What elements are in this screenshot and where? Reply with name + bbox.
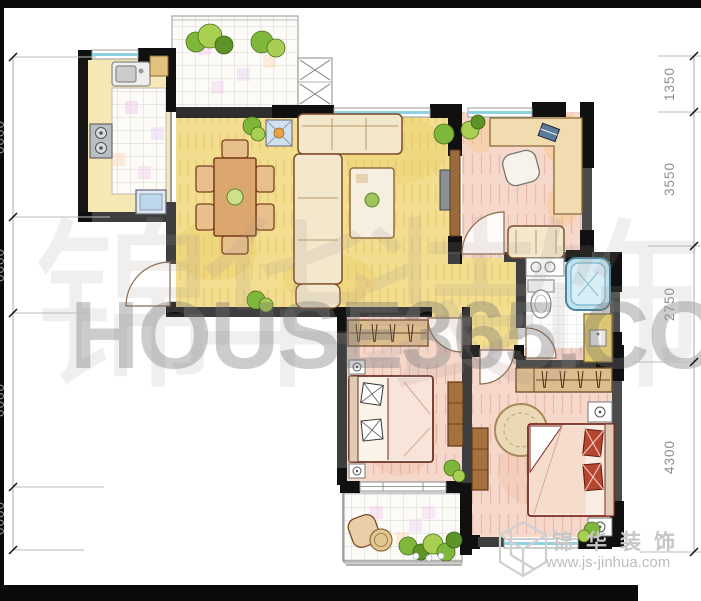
dim-label-left-clipped: 0000 xyxy=(0,501,7,535)
master-cabinet xyxy=(472,428,488,490)
dim-label-left-clipped: 0000 xyxy=(0,120,7,154)
balcony-table xyxy=(370,529,392,551)
floor-plan-image: 锦华装饰 HOUSE365.COM 锦华装饰 www.js-jinhua.com xyxy=(0,0,701,601)
dining-chair xyxy=(222,140,248,158)
table-centerpiece xyxy=(227,189,243,205)
kitchen-cabinet xyxy=(150,56,168,76)
dining-chair xyxy=(196,166,214,192)
dim-label-3550: 3550 xyxy=(662,162,677,196)
dim-label-left-clipped: 0000 xyxy=(0,248,7,282)
north-balcony-floor xyxy=(172,16,298,108)
watermark-site: HOUSE365.COM xyxy=(70,282,701,389)
dim-label-1350: 1350 xyxy=(662,67,677,101)
shaft-box xyxy=(298,58,332,106)
dim-label-2750: 2750 xyxy=(662,287,677,321)
tv xyxy=(440,170,450,210)
brand-url: www.js-jinhua.com xyxy=(545,554,670,571)
kitchen-window xyxy=(92,50,138,59)
dim-label-left-clipped: 0000 xyxy=(0,383,7,417)
sliding-door xyxy=(360,482,446,491)
floor-plan-svg: 锦华装饰 HOUSE365.COM 锦华装饰 www.js-jinhua.com xyxy=(0,0,701,601)
nightstand xyxy=(349,464,365,478)
stove xyxy=(90,124,112,158)
master-bed xyxy=(528,424,614,516)
dim-label-4300: 4300 xyxy=(662,440,677,474)
dining-chair xyxy=(256,166,274,192)
brand-name: 锦华装饰 xyxy=(552,530,688,554)
sofa xyxy=(298,114,402,154)
